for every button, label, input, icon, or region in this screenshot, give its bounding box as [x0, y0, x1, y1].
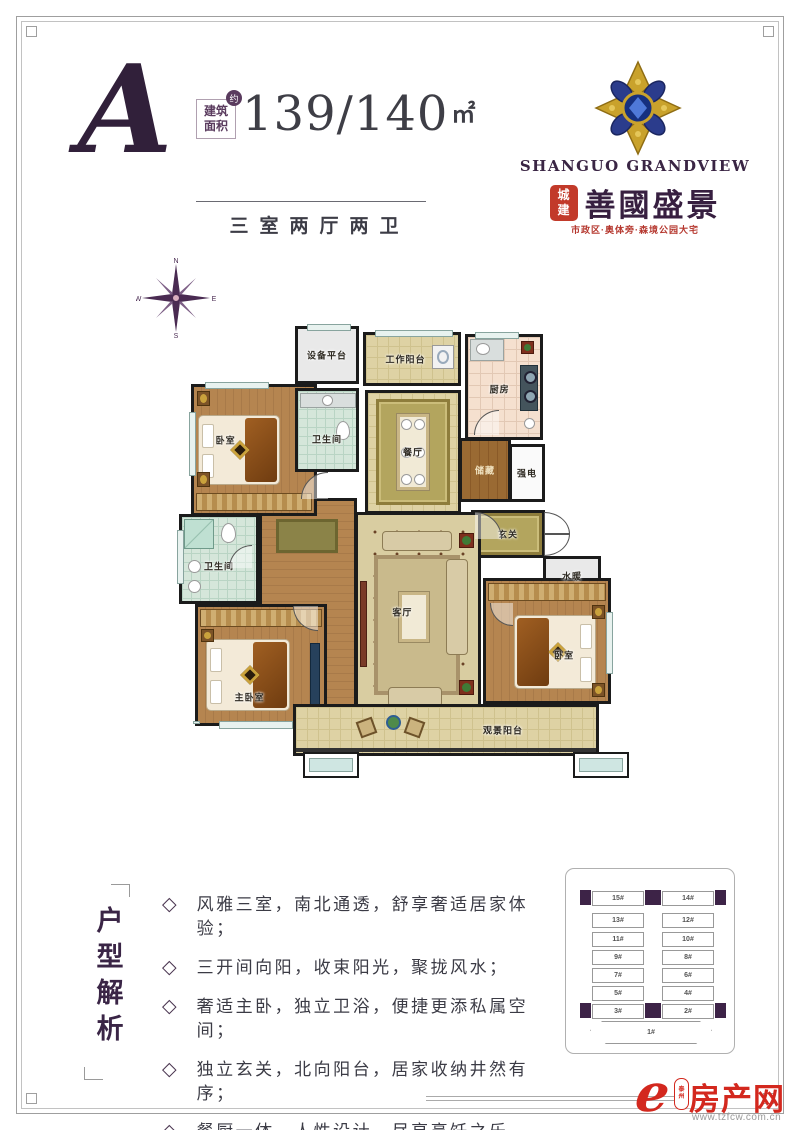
room-living: 客厅 [355, 512, 481, 724]
toilet-icon [221, 523, 236, 543]
window [475, 332, 519, 339]
analysis-item: ◇ 餐厨一体，人性设计，尽享烹饪之乐。 [162, 1120, 562, 1130]
analysis-points: ◇ 风雅三室，南北通透，舒享奢适居家体验； ◇ 三开间向阳，收束阳光，聚拢风水；… [162, 893, 562, 1130]
building-7: 7# [592, 968, 644, 983]
building-1: 1# [590, 1021, 712, 1044]
building-10: 10# [662, 932, 714, 947]
analysis-item: ◇ 三开间向阳，收束阳光，聚拢风水； [162, 956, 562, 981]
frame-corner-ornament [26, 26, 37, 37]
plant-icon [459, 533, 474, 548]
plant-icon [521, 341, 534, 354]
room-view-balcony: 观景阳台 [293, 704, 599, 756]
shower-icon [184, 519, 214, 549]
window [219, 721, 293, 729]
layout-type: 三室两厅两卫 [196, 211, 432, 238]
building-5: 5# [592, 986, 644, 1001]
footer-logo: e 泰 州 房产网 www.tzfcw.com.cn [636, 1070, 794, 1128]
unit-letter: A [78, 48, 173, 170]
building-11: 11# [592, 932, 644, 947]
brand-name-row: 城 建 善國盛景 [510, 180, 760, 225]
header-divider [196, 201, 426, 202]
window [177, 530, 184, 584]
room-label: 卧室 [216, 433, 236, 446]
brand-name-en: SHANGUO GRANDVIEW [510, 157, 760, 175]
building-9: 9# [592, 950, 644, 965]
analysis-item: ◇ 奢适主卧，独立卫浴，便捷更添私属空间； [162, 995, 562, 1043]
room-equipment-platform: 设备平台 [295, 326, 359, 384]
room-bathroom-top: 卫生间 [295, 388, 359, 472]
building-6: 6# [662, 968, 714, 983]
brand-emblem-icon [592, 60, 684, 156]
window [375, 330, 453, 337]
brand-seal: 城 建 [550, 185, 578, 221]
room-dining: 餐厅 [365, 390, 461, 514]
room-storage: 储藏 [459, 438, 511, 502]
plant-icon [459, 680, 474, 695]
area-unit: ㎡ [451, 99, 476, 128]
bracket-icon [84, 1067, 103, 1080]
approx-badge: 约 [226, 90, 242, 106]
room-kitchen: 厨房 [465, 334, 543, 440]
window [193, 721, 200, 724]
footer-site-url: www.tzfcw.com.cn [692, 1112, 781, 1123]
room-electric: 强电 [509, 444, 545, 502]
building-12: 12# [662, 913, 714, 928]
wardrobe-icon [488, 583, 606, 601]
siteplan: 15# 14# 13# 12# 11# 10# 9# 8# 7# 6# 5# 4… [565, 868, 735, 1054]
window [205, 382, 269, 389]
analysis-title-block: 户型解析 [84, 884, 130, 1080]
svg-text:W: W [136, 296, 142, 303]
balcony-table-icon [386, 715, 401, 730]
floor-plan: 卧室 设备平台 工作阳台 厨房 [175, 316, 640, 768]
frame-corner-ornament [26, 1093, 37, 1104]
hall-rug [276, 519, 338, 553]
analysis-title: 户型解析 [88, 906, 127, 1050]
window [606, 612, 613, 674]
building-14: 14# [662, 891, 714, 906]
building-15: 15# [592, 891, 644, 906]
window [573, 752, 629, 778]
bracket-icon [111, 884, 130, 897]
diamond-bullet-icon: ◇ [162, 995, 177, 1020]
entry-door-icon [544, 534, 570, 556]
sofa-icon [382, 531, 452, 551]
frame-corner-ornament [763, 26, 774, 37]
room-work-balcony: 工作阳台 [363, 332, 461, 386]
building-8: 8# [662, 950, 714, 965]
building-3: 3# [592, 1004, 644, 1019]
entry-door-icon [544, 512, 570, 534]
analysis-item: ◇ 风雅三室，南北通透，舒享奢适居家体验； [162, 893, 562, 941]
diamond-bullet-icon: ◇ [162, 1058, 177, 1083]
balcony-chair-icon [356, 717, 378, 739]
poster-page: A 建筑 面积 约 139/140㎡ 三室两厅两卫 SHANGUO GRANDV… [0, 0, 800, 1130]
area-label-line1: 建筑 [204, 104, 228, 119]
svg-text:E: E [212, 296, 216, 303]
footer-seal: 泰 州 [674, 1078, 689, 1110]
diamond-bullet-icon: ◇ [162, 1120, 177, 1130]
building-13: 13# [592, 913, 644, 928]
window [303, 752, 359, 778]
brand-tagline: 市政区·奥体旁·森境公园大宅 [510, 223, 760, 236]
brand-name-cn: 善國盛景 [585, 180, 721, 225]
bed-icon [198, 415, 280, 485]
room-bedroom-right: 卧室 [483, 578, 611, 704]
tv-cabinet-icon [360, 581, 367, 667]
building-2: 2# [662, 1004, 714, 1019]
footer-logo-letter: e [632, 1068, 672, 1120]
wardrobe-icon [196, 493, 312, 511]
area-value: 139/140㎡ [242, 86, 476, 142]
window [307, 324, 351, 331]
area-label-line2: 面积 [204, 119, 228, 134]
room-bathroom-left: 卫生间 [179, 514, 259, 604]
svg-text:N: N [173, 258, 178, 265]
diamond-bullet-icon: ◇ [162, 956, 177, 981]
diamond-bullet-icon: ◇ [162, 893, 177, 918]
building-4: 4# [662, 986, 714, 1001]
window [189, 412, 196, 476]
